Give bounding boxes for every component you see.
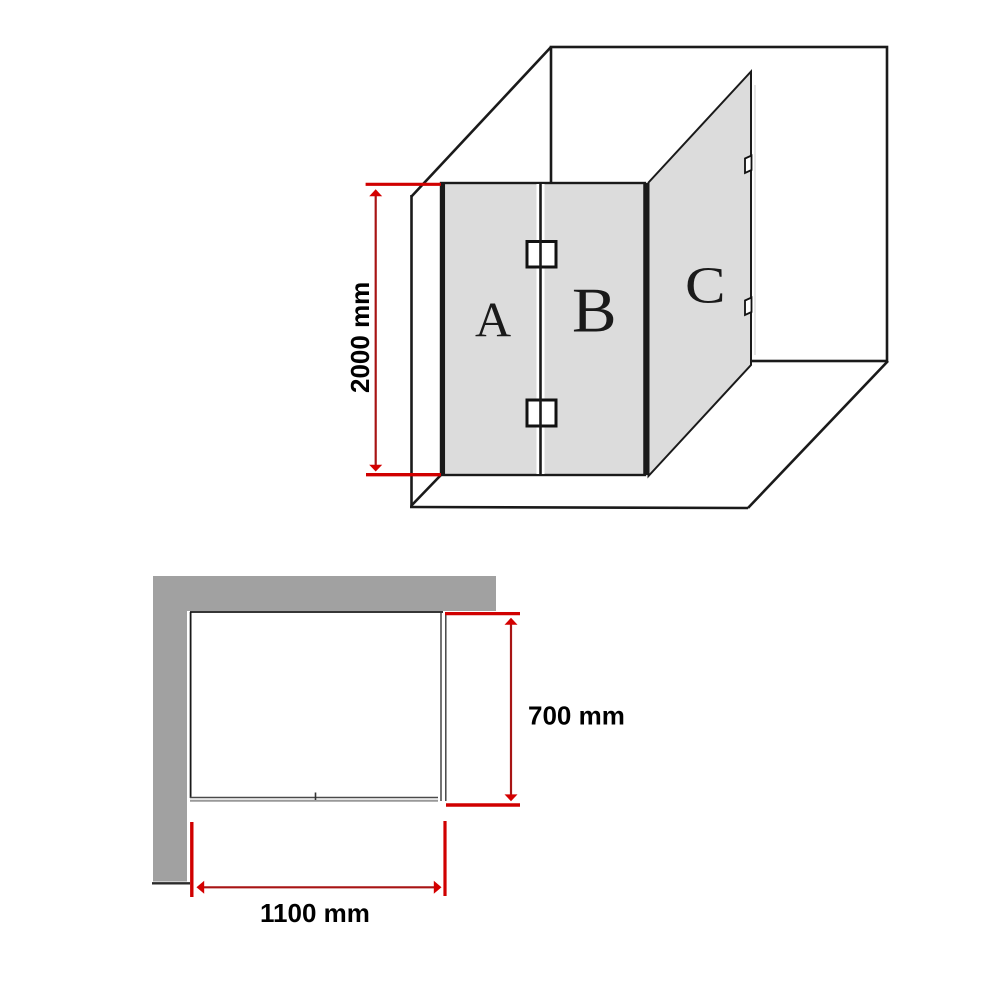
- svg-text:A: A: [475, 292, 511, 348]
- svg-text:C: C: [685, 257, 726, 314]
- svg-text:B: B: [572, 276, 617, 346]
- svg-text:700 mm: 700 mm: [528, 701, 625, 731]
- svg-text:2000 mm: 2000 mm: [345, 282, 375, 393]
- svg-text:1100 mm: 1100 mm: [260, 898, 370, 928]
